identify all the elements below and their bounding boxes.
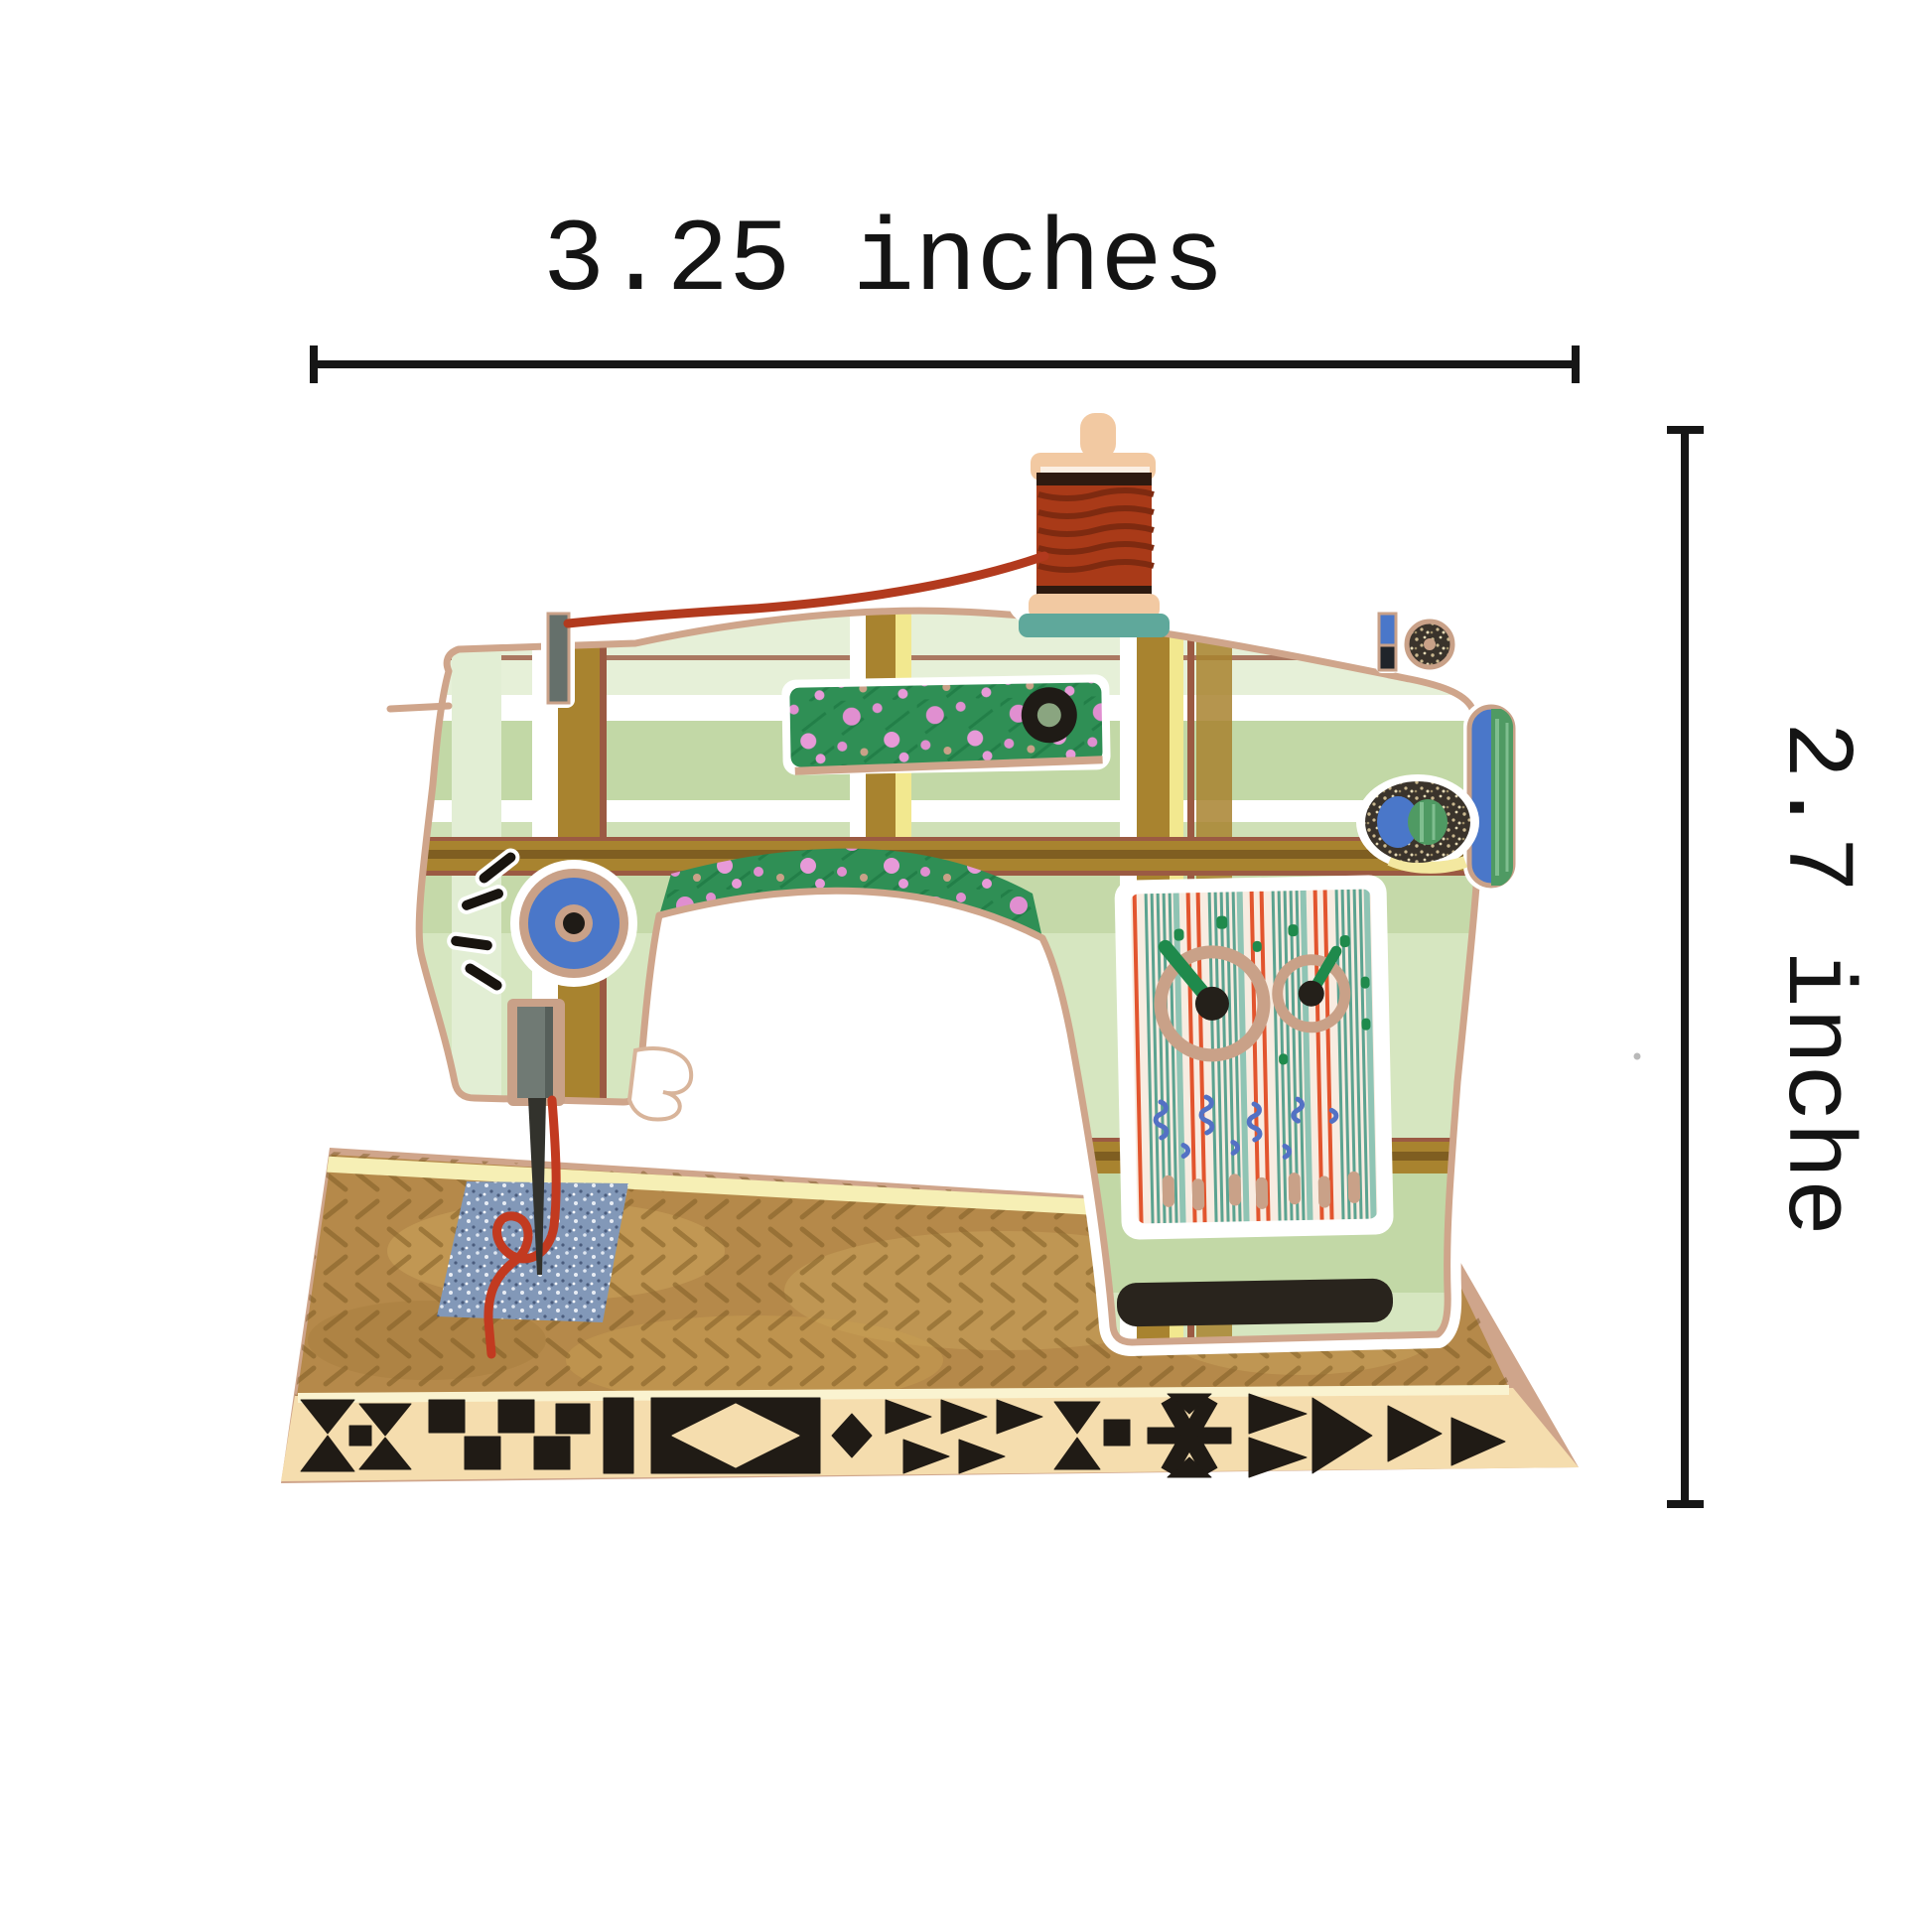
thread-spool (1007, 405, 1183, 637)
plaid-tick-left (390, 706, 449, 709)
floral-strip (781, 674, 1111, 775)
presser-foot (629, 1048, 691, 1119)
top-pin (1376, 610, 1399, 673)
side-knob (1356, 774, 1479, 870)
fabric-patch (437, 1181, 628, 1322)
top-knob-dot (1402, 617, 1457, 672)
height-dimension (1667, 430, 1704, 1504)
needle-bar (507, 999, 565, 1106)
width-dimension-label: 3.25 inches (543, 204, 1225, 321)
spool-knob (1080, 413, 1116, 459)
height-dimension-label: 2.7 inche (1761, 722, 1869, 1236)
illustration-canvas: 3.25 inches 2.7 inche (0, 0, 1932, 1932)
spool-thread-top-edge (1036, 473, 1152, 485)
hand-wheel-dial (510, 860, 637, 987)
side-capsule (1463, 701, 1517, 892)
width-dimension (314, 345, 1576, 383)
column-foot-bar (1117, 1279, 1394, 1327)
control-panel (1114, 875, 1394, 1240)
page: 3.25 inches 2.7 inche (0, 0, 1932, 1932)
stray-speck (1634, 1053, 1641, 1060)
spool-teal-base (1019, 614, 1170, 637)
